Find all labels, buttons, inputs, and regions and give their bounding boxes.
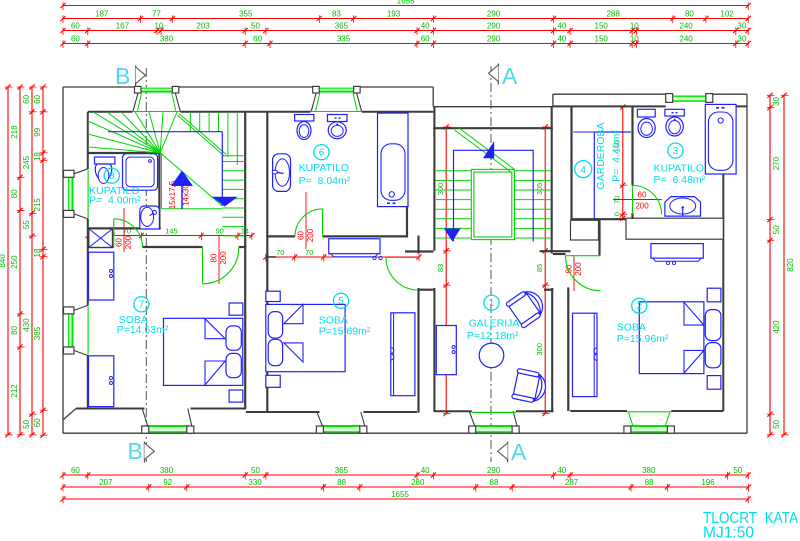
- svg-text:A: A: [511, 439, 527, 465]
- svg-text:50: 50: [772, 225, 781, 234]
- svg-text:50: 50: [772, 419, 781, 428]
- svg-text:30: 30: [738, 35, 747, 44]
- svg-text:290: 290: [487, 466, 501, 475]
- svg-text:60: 60: [71, 35, 80, 44]
- svg-text:40: 40: [557, 22, 566, 31]
- svg-text:30: 30: [738, 22, 747, 31]
- svg-text:200: 200: [635, 202, 649, 211]
- svg-text:218: 218: [10, 125, 19, 139]
- svg-text:99: 99: [33, 127, 42, 136]
- svg-text:330: 330: [248, 478, 262, 487]
- svg-text:10: 10: [630, 35, 639, 44]
- svg-text:83: 83: [436, 264, 445, 272]
- svg-text:SOBA: SOBA: [617, 322, 646, 334]
- svg-text:50: 50: [251, 22, 260, 31]
- svg-text:A: A: [502, 63, 518, 89]
- svg-text:MJ1:50: MJ1:50: [703, 525, 754, 541]
- svg-text:88: 88: [645, 478, 654, 487]
- svg-text:GALERIJA: GALERIJA: [469, 318, 520, 330]
- svg-text:200: 200: [219, 251, 228, 265]
- svg-text:P=12.18m²: P=12.18m²: [467, 330, 519, 342]
- svg-text:290: 290: [487, 35, 501, 44]
- svg-text:245: 245: [22, 155, 31, 169]
- svg-text:80: 80: [10, 189, 19, 198]
- svg-text:240: 240: [679, 22, 693, 31]
- svg-text:8: 8: [109, 171, 115, 182]
- svg-text:90: 90: [216, 227, 224, 236]
- svg-text:187: 187: [95, 10, 109, 19]
- svg-text:203: 203: [196, 22, 210, 31]
- svg-text:1655: 1655: [397, 0, 415, 6]
- svg-text:88: 88: [490, 478, 499, 487]
- svg-text:430: 430: [22, 318, 31, 332]
- svg-text:290: 290: [487, 10, 501, 19]
- svg-text:3: 3: [673, 146, 679, 157]
- svg-text:18: 18: [33, 152, 42, 161]
- svg-text:287: 287: [565, 478, 579, 487]
- svg-text:P= 8.04m²: P= 8.04m²: [299, 175, 351, 187]
- svg-text:200: 200: [574, 262, 583, 276]
- svg-text:10: 10: [155, 22, 164, 31]
- svg-text:P= 6.48m²: P= 6.48m²: [654, 174, 706, 186]
- svg-text:355: 355: [239, 10, 253, 19]
- svg-text:365: 365: [335, 466, 349, 475]
- svg-text:60: 60: [297, 231, 306, 240]
- svg-text:60: 60: [253, 35, 262, 44]
- svg-text:290: 290: [487, 22, 501, 31]
- svg-text:50: 50: [733, 466, 742, 475]
- svg-text:50: 50: [22, 419, 31, 428]
- svg-text:270: 270: [772, 156, 781, 170]
- svg-text:P= 4.00m²: P= 4.00m²: [89, 195, 141, 207]
- svg-text:150: 150: [595, 35, 609, 44]
- svg-text:200: 200: [306, 228, 315, 242]
- svg-text:420: 420: [772, 320, 781, 334]
- svg-text:77: 77: [152, 10, 161, 19]
- svg-text:85: 85: [535, 264, 544, 272]
- svg-text:50: 50: [251, 466, 260, 475]
- svg-text:18: 18: [33, 248, 42, 257]
- svg-text:P=15.69m²: P=15.69m²: [319, 325, 371, 337]
- svg-text:300: 300: [535, 343, 544, 356]
- svg-text:60: 60: [71, 466, 80, 475]
- svg-text:14x30: 14x30: [182, 184, 191, 206]
- svg-text:40: 40: [557, 35, 566, 44]
- svg-text:70: 70: [305, 248, 313, 257]
- svg-text:1655: 1655: [391, 490, 409, 499]
- svg-text:200: 200: [124, 235, 133, 249]
- svg-text:55: 55: [22, 220, 31, 229]
- svg-text:40: 40: [421, 466, 430, 475]
- svg-text:80: 80: [685, 10, 694, 19]
- svg-text:60: 60: [115, 238, 124, 247]
- svg-text:92: 92: [163, 478, 172, 487]
- svg-text:380: 380: [160, 466, 174, 475]
- svg-text:145: 145: [165, 227, 178, 236]
- svg-text:40: 40: [557, 466, 566, 475]
- svg-text:30: 30: [772, 97, 781, 106]
- svg-text:2: 2: [637, 301, 643, 312]
- svg-text:7: 7: [139, 300, 145, 311]
- svg-text:1: 1: [489, 298, 495, 309]
- svg-text:380: 380: [642, 466, 656, 475]
- svg-text:335: 335: [337, 35, 351, 44]
- svg-text:B: B: [115, 63, 130, 89]
- svg-text:60: 60: [638, 191, 647, 200]
- svg-text:102: 102: [720, 10, 734, 19]
- svg-text:60: 60: [421, 35, 430, 44]
- svg-text:60: 60: [33, 94, 42, 103]
- svg-text:70: 70: [276, 248, 284, 257]
- svg-text:60: 60: [33, 418, 42, 427]
- svg-text:5: 5: [338, 296, 344, 307]
- svg-text:10: 10: [630, 22, 639, 31]
- svg-text:KUPATILO: KUPATILO: [654, 163, 704, 175]
- svg-text:P=14.63m²: P=14.63m²: [117, 324, 169, 336]
- svg-text:4: 4: [580, 165, 586, 176]
- svg-text:193: 193: [387, 10, 401, 19]
- svg-text:40: 40: [421, 22, 430, 31]
- svg-text:207: 207: [99, 478, 113, 487]
- svg-text:6: 6: [319, 148, 325, 159]
- svg-text:GARDEROBA: GARDEROBA: [595, 122, 607, 189]
- svg-text:215: 215: [33, 198, 42, 212]
- svg-text:80: 80: [10, 325, 19, 334]
- svg-text:250: 250: [10, 255, 19, 269]
- svg-text:167: 167: [116, 22, 130, 31]
- svg-text:280: 280: [411, 478, 425, 487]
- svg-text:60: 60: [22, 94, 31, 103]
- svg-text:240: 240: [679, 35, 693, 44]
- svg-text:KUPATILO: KUPATILO: [299, 162, 349, 174]
- svg-text:B: B: [128, 438, 143, 464]
- svg-text:60: 60: [71, 22, 80, 31]
- svg-text:80: 80: [210, 253, 219, 262]
- svg-text:300: 300: [436, 183, 445, 196]
- svg-text:365: 365: [335, 22, 349, 31]
- svg-text:820: 820: [786, 258, 795, 272]
- svg-text:150: 150: [595, 22, 609, 31]
- svg-text:88: 88: [337, 478, 346, 487]
- svg-text:212: 212: [10, 384, 19, 398]
- svg-text:840: 840: [0, 254, 7, 268]
- svg-text:305: 305: [535, 183, 544, 196]
- svg-text:380: 380: [160, 35, 174, 44]
- svg-text:P= 4.40m²: P= 4.40m²: [611, 130, 623, 182]
- svg-text:196: 196: [701, 478, 715, 487]
- svg-text:83: 83: [332, 10, 341, 19]
- svg-text:P=15.96m²: P=15.96m²: [617, 333, 669, 345]
- svg-text:385: 385: [33, 326, 42, 340]
- svg-text:288: 288: [607, 10, 621, 19]
